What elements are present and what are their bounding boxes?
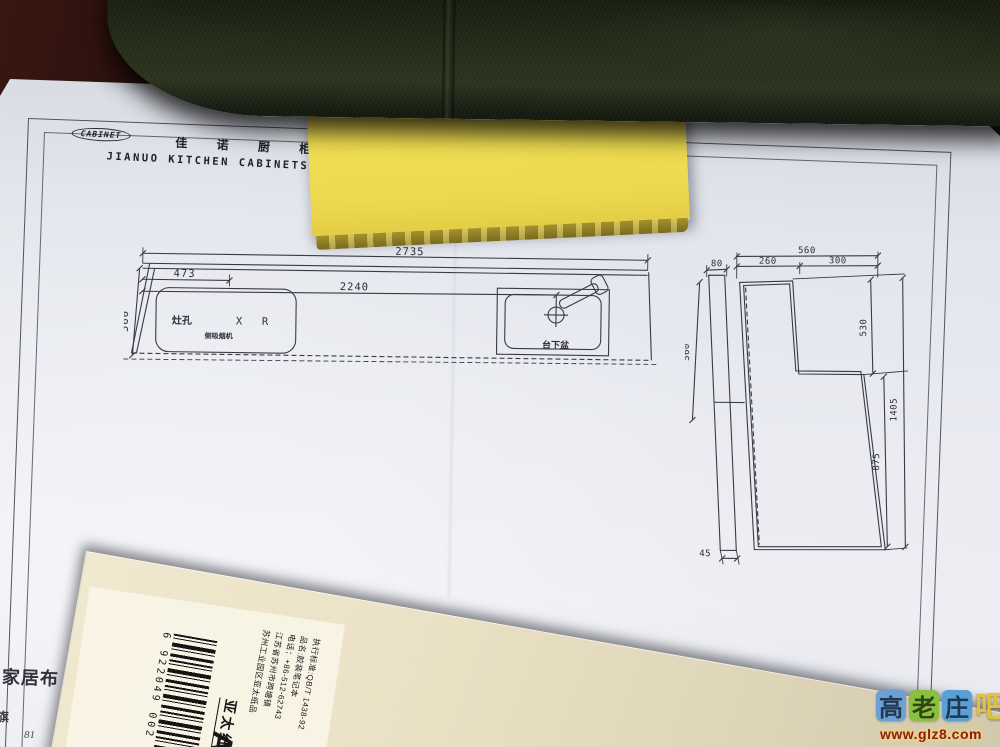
- watermark-char-ba: 吧: [975, 690, 1000, 726]
- card-printed-content: 型号 执行标准:QB/T 1438-92 品名:胶装笔记本 电话：+86-512…: [62, 591, 337, 747]
- watermark-char-tile: 老: [909, 690, 939, 721]
- side-profile-drawing: 560 260 300 80 560 45 530: [683, 240, 936, 577]
- hood-label: 侧吸烟机: [205, 331, 233, 340]
- dim-total-height: 1405: [889, 398, 899, 422]
- bag-seam: [442, 0, 456, 119]
- dim-depth: 560: [123, 310, 131, 332]
- dark-bag-object: [106, 0, 1000, 127]
- watermark-char-tile: 庄: [942, 690, 972, 721]
- dim-top-total: 560: [798, 246, 816, 256]
- hob-x-label: X: [236, 316, 243, 328]
- bag-sheen: [567, 2, 998, 78]
- watermark: 高 老 庄 吧 www.glz8.com: [876, 690, 1000, 747]
- paper-footer-text-3: 81: [24, 729, 35, 741]
- dim-strip-end: 45: [699, 549, 711, 559]
- dim-total-width: 2735: [395, 246, 424, 258]
- dim-upper-height: 530: [859, 319, 869, 337]
- hob-label: 灶孔: [172, 314, 192, 327]
- watermark-char-tile: 高: [876, 690, 906, 721]
- dim-top-left: 260: [759, 257, 777, 267]
- hob-r-label: R: [262, 316, 269, 328]
- dim-strip-width: 80: [711, 259, 723, 269]
- dim-top-right: 300: [829, 256, 847, 266]
- barcode: 6 922049 002: [123, 631, 217, 747]
- desk-photo-scene: CABINET 佳 诺 厨 柜 JIANUO KITCHEN CABINETS …: [0, 0, 1000, 747]
- cabinet-logo: CABINET: [71, 127, 130, 143]
- paper-footer-text-2: 旗: [0, 708, 9, 725]
- dim-sink-center: 2240: [340, 281, 369, 293]
- dim-strip-length: 560: [683, 343, 692, 361]
- countertop-plan-drawing: 2735 473 2240 560 灶孔 X R 侧吸烟机: [123, 243, 685, 386]
- paper-footer-text: 家居布: [2, 663, 60, 691]
- sink-label: 台下盆: [542, 339, 570, 350]
- dim-hob-offset: 473: [174, 268, 196, 280]
- dim-lower-height: 875: [872, 453, 882, 471]
- watermark-url: www.glz8.com: [880, 726, 982, 742]
